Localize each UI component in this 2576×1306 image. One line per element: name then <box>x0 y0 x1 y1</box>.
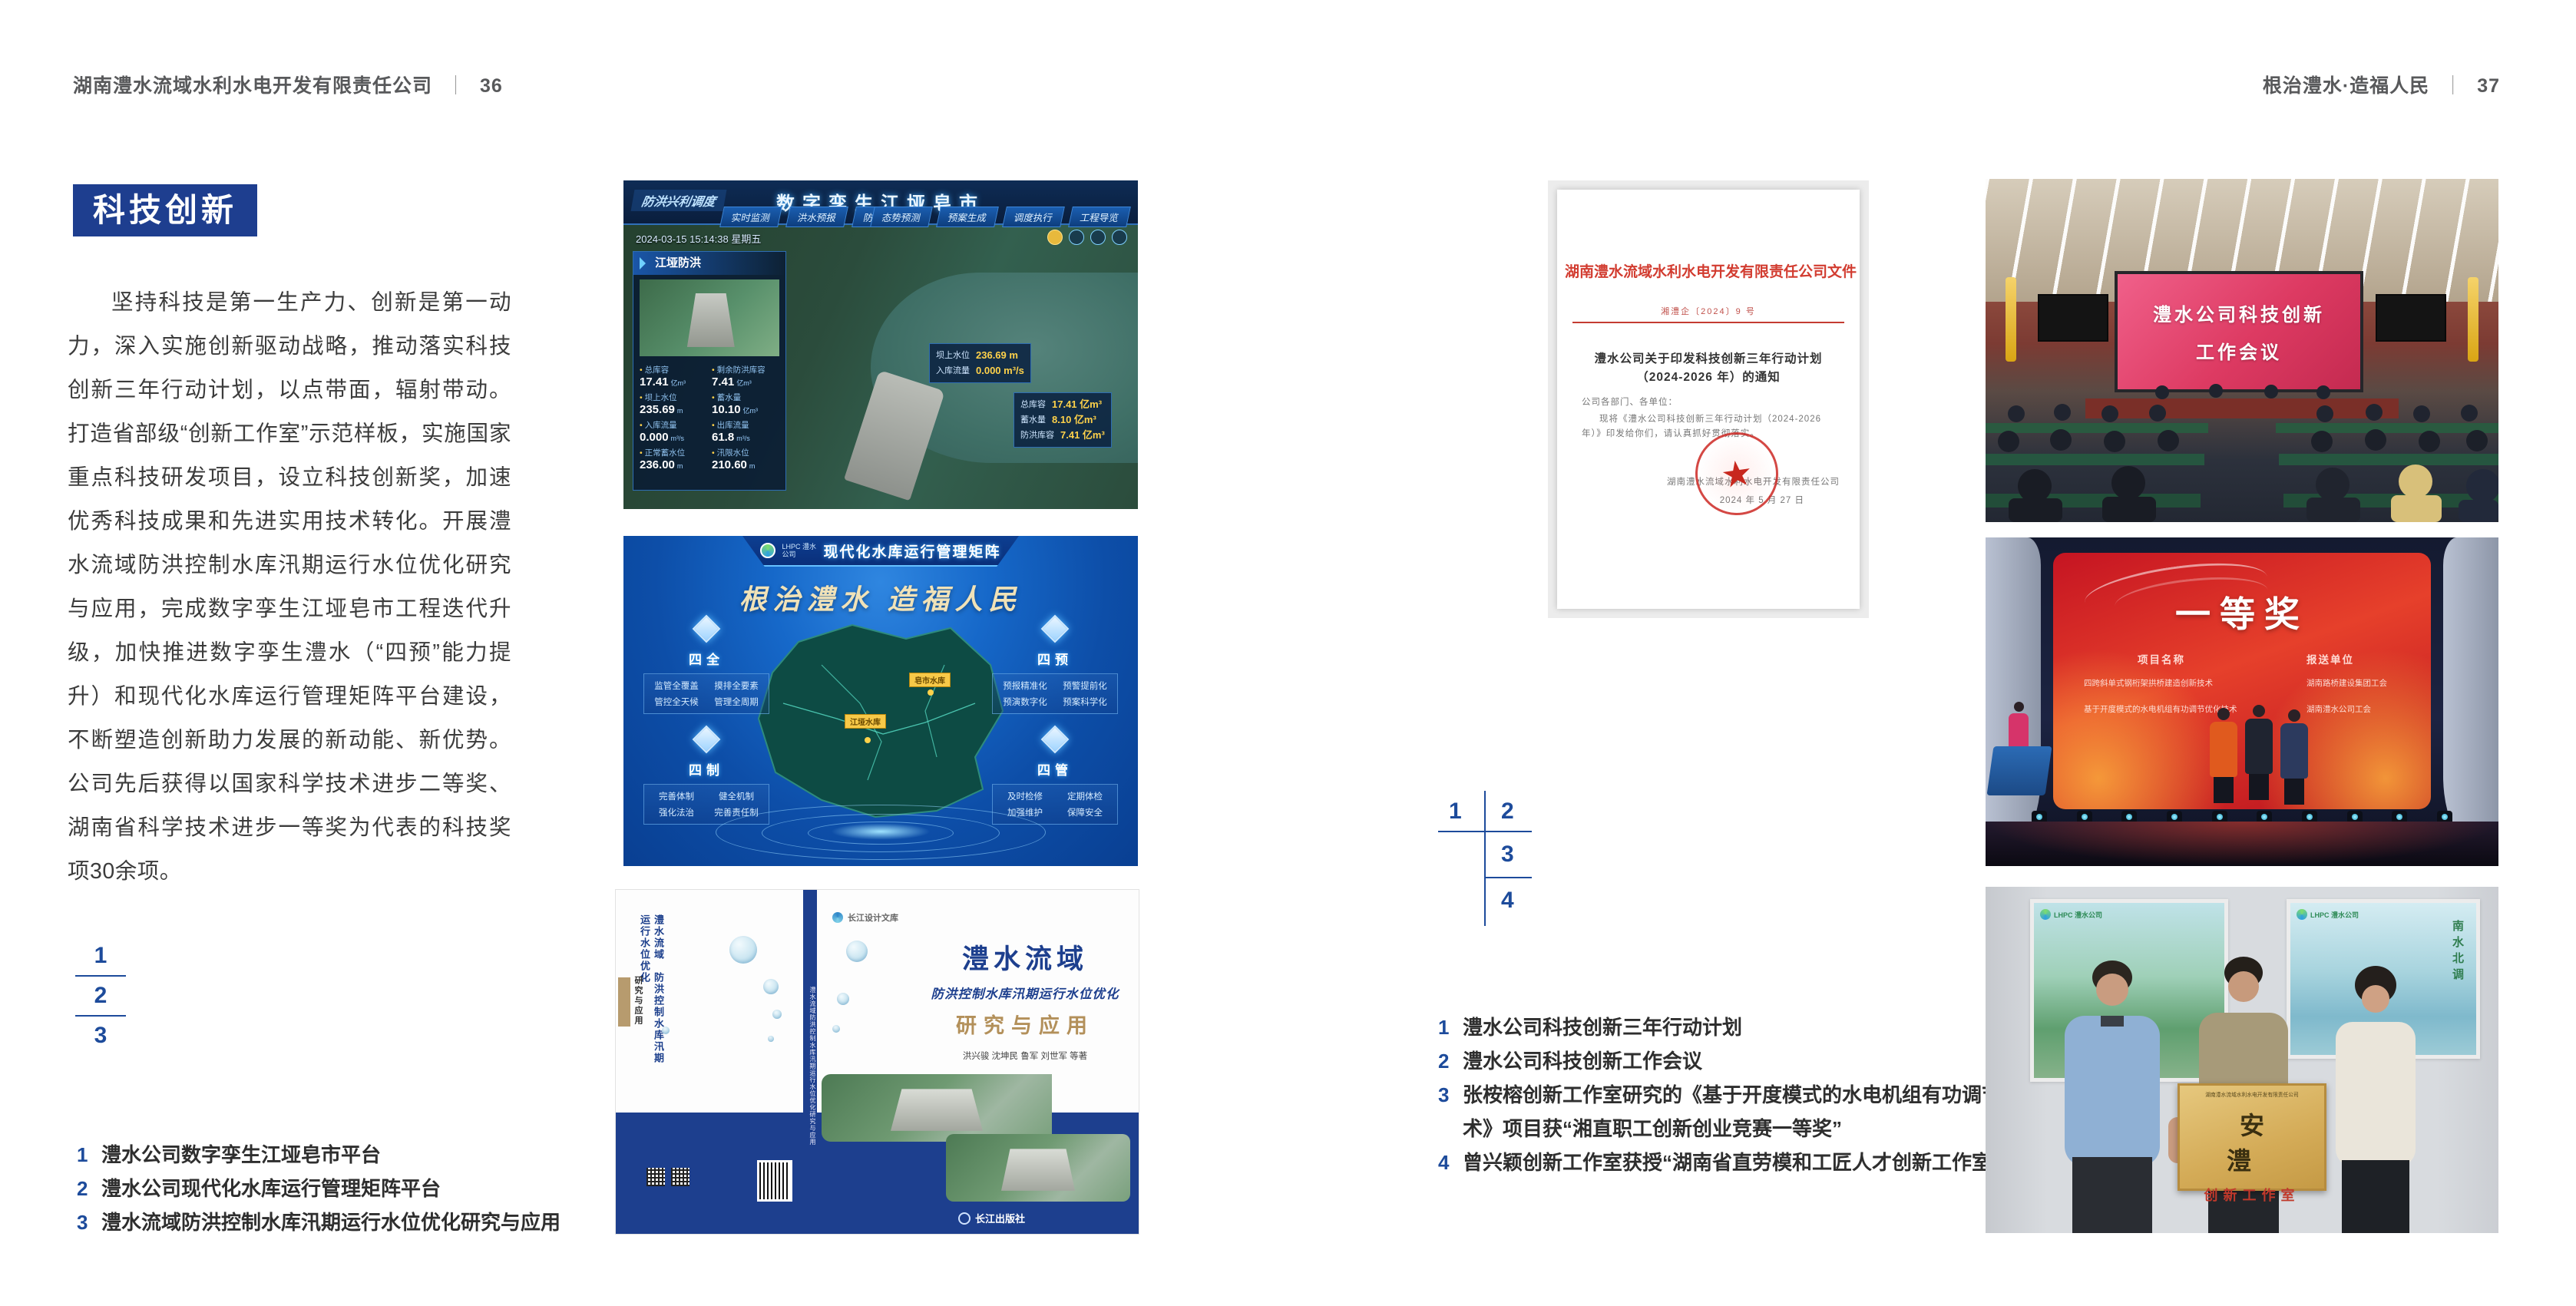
map-data-chip: 总库容17.41 亿m³ 蓄水量8.10 亿m³ 防洪库容7.41 亿m³ <box>1014 392 1112 448</box>
cube-icon <box>693 615 721 643</box>
figure-meeting-photo: 澧水公司科技创新 工作会议 <box>1986 179 2498 522</box>
presenter-silhouette <box>2245 705 2273 800</box>
section-badge: 科技创新 <box>73 184 257 236</box>
book-spine: 澧水流域防洪控制水库汛期运行水位优化研究与应用 <box>803 890 817 1234</box>
caption-item: 1 澧水公司科技创新三年行动计划 <box>1438 1010 2075 1044</box>
caption-item: 4 曾兴颖创新工作室获授“湖南省直劳模和工匠人才创新工作室” <box>1438 1146 2075 1179</box>
figure-official-document: 湖南澧水流域水利水电开发有限责任公司文件 湘澧企〔2024〕9 号 澧水公司关于… <box>1548 180 1869 618</box>
caption-item: 2 澧水公司现代化水库运行管理矩阵平台 <box>77 1172 568 1205</box>
caption-text: 澧水流域防洪控制水库汛期运行水位优化研究与应用 <box>101 1205 568 1239</box>
screen-title-line1: 澧水公司科技创新 <box>2153 299 2325 326</box>
stat-cell: 总库容17.41亿m³ <box>640 364 707 390</box>
company-logo-text: LHPC 澧水公司 <box>782 543 817 558</box>
locator-line <box>1484 877 1532 878</box>
locator-number: 1 <box>75 943 126 969</box>
tan-block <box>618 977 630 1027</box>
stat-cell: 剩余防洪库容7.41亿m³ <box>712 364 779 390</box>
water-droplet <box>772 1010 782 1019</box>
innovation-studio-plaque: 湖南澧水流域水利水电开发有限责任公司 安 澧 创新工作室 <box>2178 1083 2326 1191</box>
caption-text: 张桉榕创新工作室研究的《基于开度模式的水电机组有功调节优化技术》项目获“湘直职工… <box>1463 1078 2075 1146</box>
locator-line <box>1438 831 1532 832</box>
book-subtitle2: 研究与应用 <box>914 1009 1136 1039</box>
caption-text: 曾兴颖创新工作室获授“湖南省直劳模和工匠人才创新工作室” <box>1463 1146 2075 1179</box>
caption-text: 澧水公司科技创新三年行动计划 <box>1463 1010 2075 1044</box>
header-divider: ｜ <box>2443 75 2463 97</box>
figure-book-cover: 澧水流域 防洪控制水库汛期运行水位优化 研究与应用 澧水流域防洪控制水库汛期运行… <box>615 889 1139 1235</box>
wall-lamp <box>2006 277 2016 362</box>
locator-line <box>75 975 126 977</box>
caption-text: 澧水公司现代化水库运行管理矩阵平台 <box>101 1172 568 1205</box>
book-authors: 洪兴骏 沈坤民 鲁军 刘世军 等著 <box>914 1050 1136 1062</box>
dashboard-tab: 工程导览 <box>1068 207 1131 227</box>
right-figure-locator: 1 2 3 4 <box>1438 791 1532 926</box>
map-data-chip: 坝上水位236.69 m 入库流量0.000 m³/s <box>929 343 1031 383</box>
seal-star-icon: ★ <box>1718 454 1754 493</box>
qr-code <box>671 1168 689 1186</box>
info-icon <box>1090 230 1106 245</box>
reflective-stage-floor <box>1986 822 2498 866</box>
cube-icon <box>1041 726 1070 754</box>
dam-structure <box>844 370 945 501</box>
document-salutation: 公司各部门、各单位： <box>1582 395 1835 410</box>
document-title-line2: （2024-2026 年）的通知 <box>1557 368 1860 385</box>
map-label: 江垭水库 <box>845 714 886 729</box>
publisher-mark: 长江出版社 <box>958 1211 1025 1225</box>
locator-line <box>75 1015 126 1017</box>
award-column-header: 报送单位 <box>2306 651 2354 666</box>
dam-photo <box>822 1074 1052 1142</box>
dam-thumbnail <box>640 279 779 356</box>
water-droplet <box>662 1027 670 1034</box>
audience-crowd <box>1986 363 2498 522</box>
dashboard-datetime: 2024-03-15 15:14:38 星期五 <box>636 231 761 246</box>
dashboard-tab: 洪水预报 <box>785 207 848 227</box>
caption-number: 2 <box>1438 1044 1463 1078</box>
plaque-title: 安 澧 <box>2180 1106 2324 1177</box>
document-red-rule <box>1572 322 1844 323</box>
dashboard-side-panel: 江垭防洪 总库容17.41亿m³ 剩余防洪库容7.41亿m³ 坝上水位235.6… <box>633 251 786 491</box>
caption-number: 3 <box>77 1205 101 1239</box>
hologram-glow <box>831 823 931 840</box>
caption-item: 1 澧水公司数字孪生江垭皂市平台 <box>77 1138 568 1172</box>
platform-header: LHPC 澧水公司 现代化水库运行管理矩阵 <box>742 536 1019 567</box>
map-label: 皂市水库 <box>909 673 951 687</box>
left-caption-list: 1 澧水公司数字孪生江垭皂市平台 2 澧水公司现代化水库运行管理矩阵平台 3 澧… <box>77 1138 568 1239</box>
led-screen: 一等奖 项目名称 报送单位 四跨斜单式钢桁架拱桥建造创新技术 湖南路桥建设集团工… <box>2053 553 2431 809</box>
qr-code <box>646 1168 665 1186</box>
company-logo-icon <box>760 543 775 558</box>
water-droplet <box>768 1036 774 1042</box>
dashboard-tab: 态势预测 <box>870 207 933 227</box>
document-red-header: 湖南澧水流域水利水电开发有限责任公司文件 <box>1565 260 1852 281</box>
dam-photo <box>946 1134 1130 1202</box>
book-title: 澧水流域 <box>914 937 1136 977</box>
figure-plaque-photo: LHPC 澧水公司 LHPC 澧水公司 南水北调 湖南澧水流域水利水电开发有限责… <box>1986 887 2498 1233</box>
user-icon <box>1047 230 1063 245</box>
platform-slogan: 根治澧水 造福人民 <box>623 577 1138 617</box>
locator-number: 3 <box>75 1023 126 1049</box>
panel-stats: 总库容17.41亿m³ 剩余防洪库容7.41亿m³ 坝上水位235.69m 蓄水… <box>633 361 785 476</box>
dashboard-tabs-right: 态势预测 预案生成 调度执行 工程导览 <box>872 207 1129 227</box>
stat-cell: 出库流量61.8m³/s <box>712 419 779 445</box>
awardee-silhouette <box>2210 708 2237 803</box>
panel-title: 江垭防洪 <box>633 252 785 275</box>
series-logo: 长江设计文库 <box>832 911 898 924</box>
stat-cell: 蓄水量10.10亿m³ <box>712 392 779 418</box>
caption-number: 3 <box>1438 1078 1463 1146</box>
caption-number: 4 <box>1438 1146 1463 1179</box>
stat-cell: 汛限水位210.60m <box>712 447 779 473</box>
dashboard-tab: 预案生成 <box>936 207 999 227</box>
cube-icon <box>1041 615 1070 643</box>
stat-cell: 正常蓄水位236.00m <box>640 447 707 473</box>
publisher-logo-icon <box>832 912 843 923</box>
company-name: 湖南澧水流域水利水电开发有限责任公司 <box>73 75 432 97</box>
award-unit: 湖南路桥建设集团工会 <box>2306 677 2387 689</box>
screen-title-line2: 工作会议 <box>2196 337 2282 364</box>
dam-shape <box>1001 1149 1075 1191</box>
caption-text: 澧水公司科技创新工作会议 <box>1463 1044 2075 1078</box>
locator-line <box>1484 791 1486 926</box>
caption-text: 澧水公司数字孪生江垭皂市平台 <box>101 1138 568 1172</box>
water-droplet <box>846 941 868 962</box>
stat-cell: 坝上水位235.69m <box>640 392 707 418</box>
document-title-line1: 澧水公司关于印发科技创新三年行动计划 <box>1557 349 1860 366</box>
page-number-left: 36 <box>480 75 503 97</box>
water-droplet <box>729 936 757 964</box>
platform-title: 现代化水库运行管理矩阵 <box>823 541 1000 561</box>
front-cover-titles: 澧水流域 防洪控制水库汛期运行水位优化 研究与应用 洪兴骏 沈坤民 鲁军 刘世军… <box>914 937 1136 1062</box>
document-number: 湘澧企〔2024〕9 号 <box>1557 305 1860 317</box>
caption-number: 1 <box>1438 1010 1463 1044</box>
caption-number: 1 <box>77 1138 101 1172</box>
award-column-header: 项目名称 <box>2138 651 2185 666</box>
settings-icon <box>1112 230 1127 245</box>
locator-number: 3 <box>1501 841 1514 868</box>
figure-digital-twin-dashboard: 防洪兴利调度 数字孪生江垭皂市 实时监测 洪水预报 防洪预警 态势预测 预案生成… <box>623 180 1138 509</box>
barcode <box>757 1160 792 1202</box>
plaque-subtitle: 创新工作室 <box>2180 1185 2324 1205</box>
caption-item: 3 澧水流域防洪控制水库汛期运行水位优化研究与应用 <box>77 1205 568 1239</box>
right-caption-list: 1 澧水公司科技创新三年行动计划 2 澧水公司科技创新工作会议 3 张桉榕创新工… <box>1438 1010 2075 1179</box>
caption-item: 2 澧水公司科技创新工作会议 <box>1438 1044 2075 1078</box>
body-paragraph: 坚持科技是第一生产力、创新是第一动力，深入实施创新驱动战略，推动落实科技创新三年… <box>68 281 511 894</box>
matrix-group: 四预 预报精准化预警提前化 预演数字化预案科学化 <box>992 619 1118 714</box>
caption-item: 3 张桉榕创新工作室研究的《基于开度模式的水电机组有功调节优化技术》项目获“湘直… <box>1438 1078 2075 1146</box>
matrix-group: 四制 完善体制健全机制 强化法治完善责任制 <box>643 729 769 825</box>
caption-number: 2 <box>77 1172 101 1205</box>
water-droplet <box>837 993 849 1005</box>
page-number-right: 37 <box>2477 75 2500 97</box>
award-title: 一等奖 <box>2053 587 2431 637</box>
back-cover-subtitle: 研究与应用 <box>632 976 644 1045</box>
document-page: 湖南澧水流域水利水电开发有限责任公司文件 湘澧企〔2024〕9 号 澧水公司关于… <box>1557 190 1860 609</box>
page-spread: 湖南澧水流域水利水电开发有限责任公司｜36 根治澧水·造福人民｜37 科技创新 … <box>0 0 2576 1306</box>
matrix-group: 四管 及时检修定期体检 加强维护保障安全 <box>992 729 1118 825</box>
dashboard-tab: 调度执行 <box>1002 207 1065 227</box>
matrix-group: 四全 监管全覆盖摸排全要素 管控全天候管理全周期 <box>643 619 769 714</box>
locator-number: 2 <box>1501 798 1514 825</box>
water-droplet <box>832 1025 840 1033</box>
plaque-org-line: 湖南澧水流域水利水电开发有限责任公司 <box>2187 1091 2316 1099</box>
dam-shape <box>687 293 735 347</box>
award-unit: 湖南澧水公司工会 <box>2306 703 2371 715</box>
cube-icon <box>693 726 721 754</box>
left-running-head: 湖南澧水流域水利水电开发有限责任公司｜36 <box>73 71 503 98</box>
document-body: 现将《澧水公司科技创新三年行动计划（2024-2026 年）》印发给你们，请认真… <box>1582 412 1835 441</box>
figure-reservoir-matrix-platform: LHPC 澧水公司 现代化水库运行管理矩阵 根治澧水 造福人民 江垭水库 皂市水… <box>623 536 1138 866</box>
wall-tv <box>2038 294 2108 342</box>
locator-number: 1 <box>1449 798 1462 825</box>
wall-lamp <box>2468 277 2478 362</box>
alarm-icon <box>1069 230 1084 245</box>
figure-award-ceremony-photo: 一等奖 项目名称 报送单位 四跨斜单式钢桁架拱桥建造创新技术 湖南路桥建设集团工… <box>1986 537 2498 866</box>
book-subtitle: 防洪控制水库汛期运行水位优化 <box>914 984 1136 1002</box>
publisher-logo-icon <box>958 1212 971 1225</box>
awardee-silhouette <box>2280 709 2308 805</box>
right-running-head: 根治澧水·造福人民｜37 <box>2263 71 2500 98</box>
locator-number: 2 <box>75 983 126 1009</box>
podium <box>1987 746 2052 795</box>
water-droplet <box>763 979 779 994</box>
left-figure-locator: 1 2 3 <box>75 943 126 1049</box>
header-divider: ｜ <box>446 75 466 97</box>
spread-motto: 根治澧水·造福人民 <box>2263 75 2429 97</box>
dashboard-tab: 实时监测 <box>719 207 782 227</box>
stat-cell: 入库流量0.000m³/s <box>640 419 707 445</box>
locator-number: 4 <box>1501 888 1514 914</box>
dam-shape <box>891 1089 983 1131</box>
dashboard-icon-row <box>1047 230 1127 245</box>
wall-tv <box>2376 294 2446 342</box>
award-project: 四跨斜单式钢桁架拱桥建造创新技术 <box>2084 677 2213 689</box>
